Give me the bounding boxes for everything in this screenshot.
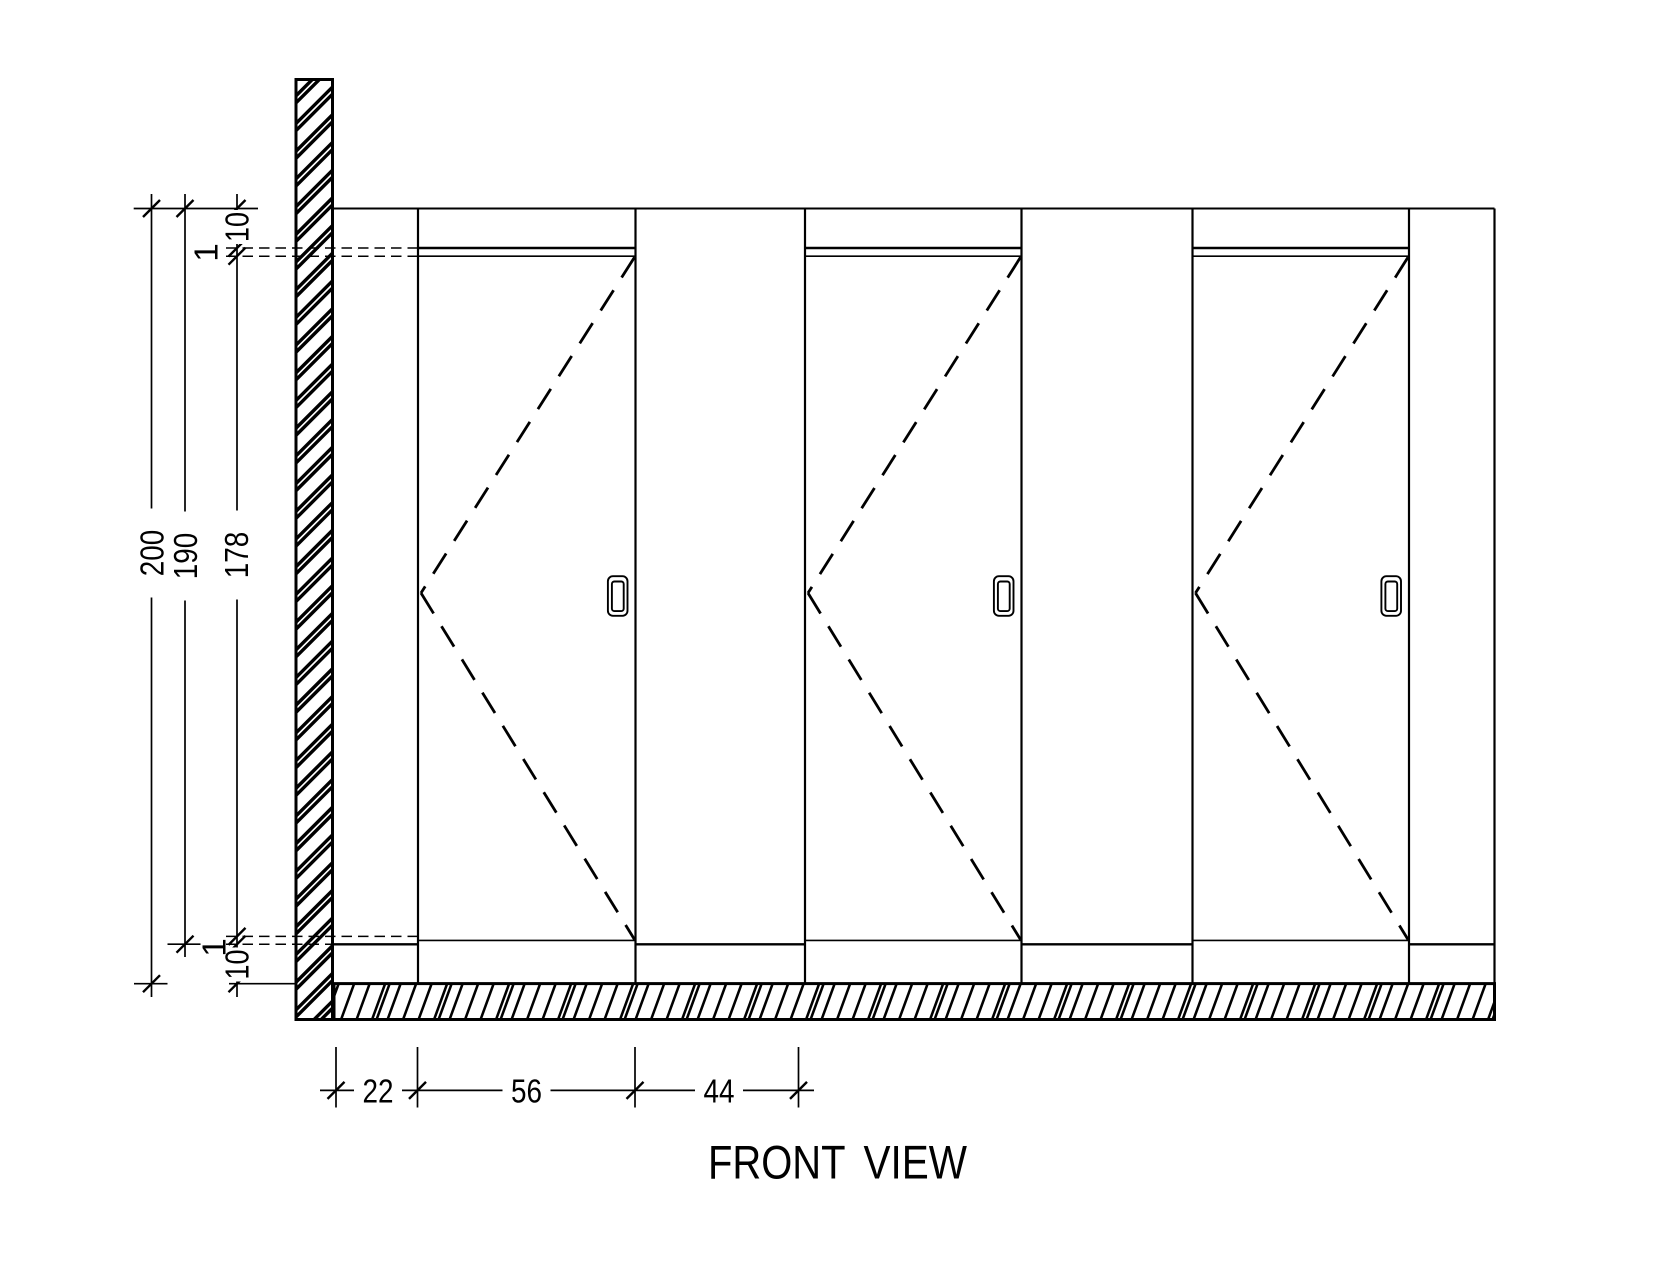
svg-text:VIEW: VIEW xyxy=(864,1136,968,1189)
svg-text:10: 10 xyxy=(219,950,256,980)
svg-text:178: 178 xyxy=(218,532,255,579)
svg-text:10: 10 xyxy=(219,212,256,242)
svg-text:22: 22 xyxy=(363,1072,394,1109)
svg-text:190: 190 xyxy=(167,533,204,580)
svg-text:200: 200 xyxy=(134,530,171,577)
svg-text:44: 44 xyxy=(704,1072,735,1109)
svg-text:FRONT: FRONT xyxy=(708,1136,846,1189)
svg-text:1: 1 xyxy=(188,243,225,261)
svg-text:56: 56 xyxy=(511,1072,542,1109)
